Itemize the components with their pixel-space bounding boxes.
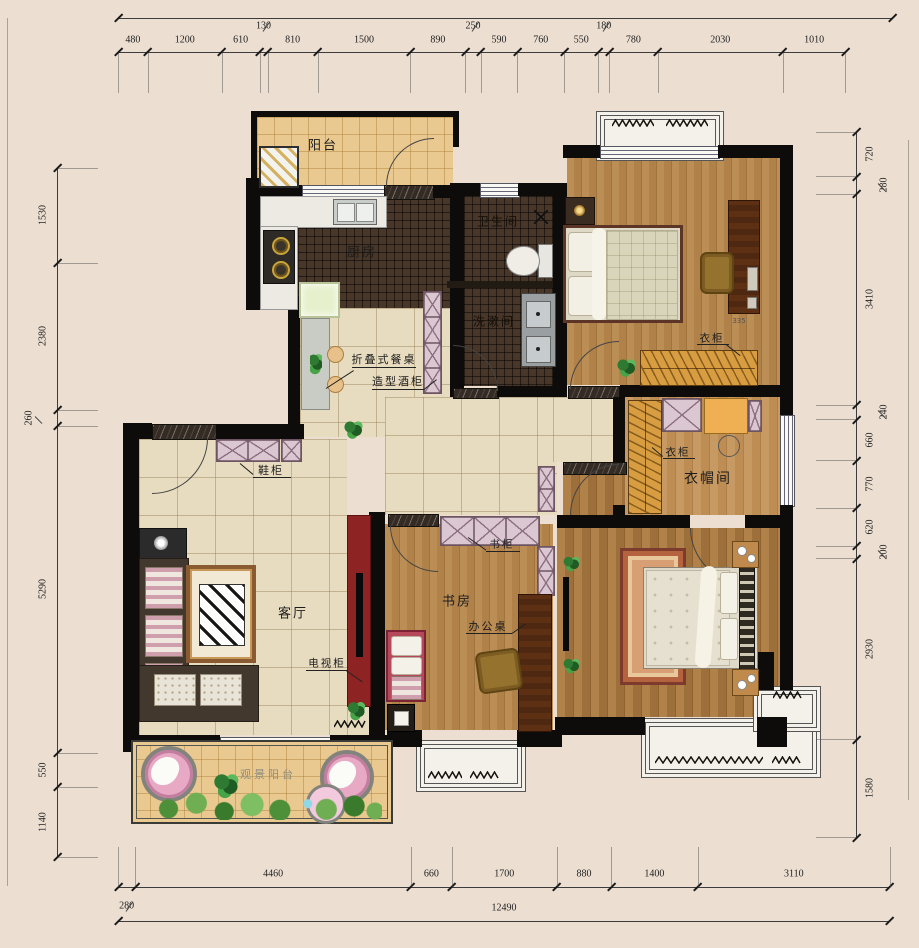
dim-tick (406, 48, 415, 57)
cabinet-x-panel (424, 317, 441, 342)
room-label-balcony-bottom: 观景阳台 (240, 766, 296, 782)
dim-tick (461, 48, 470, 57)
vanity-basin (526, 336, 551, 363)
label-shoe-cabinet: 鞋柜 (258, 462, 284, 478)
cabinet-x-panel (424, 343, 441, 368)
bay-window-master-bottom (645, 722, 817, 774)
dim-tick (594, 48, 603, 57)
dim-extension (816, 194, 856, 195)
dim-value: 610 (233, 35, 248, 46)
floor-plan-canvas: 阳台 厨房 卫生间 洗漱间 衣帽间 客厅 书房 观景阳台 折叠式餐桌 造型酒柜 … (0, 0, 919, 948)
shoe-cabinet (216, 439, 280, 462)
shower-mixer-icon (534, 210, 548, 224)
kitchen-sink (333, 199, 377, 225)
headboard (739, 566, 755, 672)
blanket (391, 676, 422, 700)
bedroom-bay-window-sill (600, 146, 720, 159)
wardrobe-cloakroom (628, 400, 662, 514)
radiator-icon (428, 771, 462, 779)
wall-bath-top-a (450, 183, 480, 196)
dim-tick (53, 405, 62, 414)
sofa-base (139, 665, 259, 722)
dim-value: 12490 (491, 903, 516, 914)
dim-value: 620 (865, 519, 876, 534)
floor-corridor (385, 397, 557, 515)
balcony-door-threshold (384, 185, 435, 200)
dim-tick (852, 503, 861, 512)
dim-tick (852, 735, 861, 744)
dim-value: 760 (533, 35, 548, 46)
dim-leader (35, 416, 43, 424)
dim-baseline (856, 132, 857, 837)
room-label-washroom: 洗漱间 (473, 313, 515, 330)
dim-extension (598, 53, 599, 93)
dim-value: 280 (879, 178, 890, 193)
dim-tick (313, 48, 322, 57)
dim-tick (114, 883, 123, 892)
wall-balcony-right (453, 111, 459, 147)
dim-tick (779, 48, 788, 57)
dim-extension (58, 753, 98, 754)
dim-extension (481, 53, 482, 93)
wall-hall-cloak-a (613, 397, 625, 462)
dim-value: 250 (466, 21, 481, 32)
pillow (720, 572, 738, 614)
cup (737, 680, 747, 690)
toilet-bowl (506, 246, 540, 276)
dim-extension (816, 546, 856, 547)
cloakroom-window (780, 415, 795, 507)
dim-value: 2030 (710, 35, 730, 46)
dim-tick (407, 883, 416, 892)
desk-chair (700, 252, 734, 294)
dim-value: 770 (865, 476, 876, 491)
dim-baseline (118, 921, 890, 922)
dim-tick (852, 554, 861, 563)
dim-extension (816, 419, 856, 420)
wall-bedroom-cloak-divider (620, 385, 793, 397)
sofa-cushion (154, 674, 196, 706)
plant (617, 358, 637, 378)
plant (563, 556, 581, 572)
dim-value: 660 (865, 432, 876, 447)
dim-tick (852, 128, 861, 137)
dim-tick (513, 48, 522, 57)
lamp (574, 205, 585, 216)
floor-hallway (553, 397, 613, 462)
cloakroom-cabinet-x (662, 398, 702, 432)
pillow (720, 618, 738, 660)
dim-leader (878, 410, 886, 418)
wall-balcony-left (251, 111, 257, 185)
dim-value: 260 (24, 410, 35, 425)
bed-top-bedroom (563, 225, 683, 323)
dim-value: 1140 (38, 812, 49, 832)
dim-value: 880 (576, 869, 591, 880)
room-label-bathroom: 卫生间 (477, 213, 519, 230)
wine-cabinet (423, 291, 442, 394)
dim-extension (411, 847, 412, 887)
wall-master-top-b (745, 515, 793, 528)
cabinet-x-panel (282, 440, 301, 461)
dim-tick (889, 14, 898, 23)
cabinet-x-panel (538, 571, 554, 595)
sofa-cushion (200, 674, 242, 706)
label-underline (486, 551, 520, 552)
label-tv-cabinet: 电视柜 (308, 656, 346, 671)
sofa-cushion (145, 567, 183, 609)
table-plant-decor (310, 351, 322, 377)
wall-living-left (123, 437, 139, 752)
dim-value: 1200 (175, 35, 195, 46)
room-label-cloakroom: 衣帽间 (684, 468, 732, 488)
dim-tick (217, 48, 226, 57)
radiator-icon (612, 119, 654, 127)
dim-extension (816, 739, 856, 740)
cabinet-x-panel (441, 517, 474, 545)
dim-extension (58, 410, 98, 411)
dim-value: 550 (38, 762, 49, 777)
cabinet-x-panel (217, 440, 248, 461)
dim-baseline (118, 18, 893, 19)
label-office-desk: 办公桌 (469, 618, 508, 634)
dim-leader (878, 183, 886, 191)
plant (344, 420, 364, 440)
dim-extension (816, 132, 856, 133)
dim-value: 1530 (38, 205, 49, 225)
plant (563, 658, 581, 674)
dim-value: 1700 (494, 869, 514, 880)
room-label-living: 客厅 (278, 603, 308, 622)
tv-master (563, 577, 569, 651)
dim-tick (852, 415, 861, 424)
cabinet-x-panel (424, 292, 441, 317)
wall-bath-divider (447, 281, 553, 288)
dim-extension (465, 53, 466, 93)
dim-leader (878, 550, 886, 558)
basin-drain (536, 312, 540, 316)
dim-tick (447, 883, 456, 892)
dim-tick (114, 48, 123, 57)
wall-right-mid (780, 505, 793, 690)
cabinet-x-panel (539, 467, 554, 489)
basin-drain (536, 347, 540, 351)
dim-extension (318, 53, 319, 93)
dim-tick (605, 48, 614, 57)
label-bookcase: 书柜 (490, 537, 515, 552)
dim-value: 720 (865, 147, 876, 162)
dim-extension (816, 558, 856, 559)
washing-machine (259, 146, 299, 188)
label-underline (466, 633, 512, 634)
plant (348, 700, 366, 722)
cabinet-x-panel (663, 399, 701, 431)
radiator-icon (773, 691, 803, 699)
wall-balcony-top (251, 111, 459, 117)
dim-tick (53, 782, 62, 791)
wall-right-upper (780, 145, 793, 415)
dim-tick (653, 48, 662, 57)
dim-tick (607, 883, 616, 892)
label-underline (372, 389, 424, 390)
refrigerator (299, 282, 340, 318)
bay-window-study (420, 744, 522, 788)
ottoman-circle (718, 435, 740, 457)
dim-extension (118, 847, 119, 887)
dim-extension (58, 426, 98, 427)
cloakroom-cabinet (704, 398, 748, 434)
dim-value: 180 (596, 21, 611, 32)
dim-tick (53, 748, 62, 757)
radiator-icon (666, 119, 708, 127)
radiator-icon (655, 756, 763, 764)
quilt (646, 570, 730, 666)
quilt (606, 230, 678, 320)
dim-extension (564, 53, 565, 93)
dim-value: 780 (626, 35, 641, 46)
plant (214, 772, 240, 800)
dim-tick (560, 48, 569, 57)
dim-tick (852, 456, 861, 465)
toilet-tank (538, 244, 553, 278)
master-nightstand (732, 669, 759, 696)
dim-value: 1580 (865, 778, 876, 798)
cloakroom-cabinet-x-small (748, 400, 762, 432)
dim-tick (143, 48, 152, 57)
dim-value: 810 (285, 35, 300, 46)
label-underline (663, 458, 695, 459)
vanity-basin (526, 301, 551, 328)
dim-tick (852, 833, 861, 842)
wall-study-left (369, 512, 385, 762)
cabinet-x-panel (538, 547, 554, 571)
dim-extension (816, 405, 856, 406)
dim-extension (260, 53, 261, 93)
dim-leader (125, 901, 133, 911)
wall-bay-column (757, 717, 787, 747)
radiator-icon (772, 756, 802, 764)
dim-value: 4460 (263, 869, 283, 880)
dim-value: 2930 (865, 639, 876, 659)
dim-tick (852, 542, 861, 551)
dim-extension (118, 53, 119, 93)
dim-baseline (118, 52, 845, 53)
room-label-study: 书房 (442, 591, 472, 610)
stove-burner (272, 237, 290, 255)
room-label-kitchen: 厨房 (347, 242, 377, 261)
tv-living (356, 573, 363, 657)
cabinet-x-panel (248, 440, 279, 461)
gas-stove (263, 230, 295, 284)
label-folding-table: 折叠式餐桌 (352, 351, 417, 367)
dim-extension (452, 847, 453, 887)
dim-extension (816, 837, 856, 838)
dim-value: 3410 (865, 289, 876, 309)
desk-item (747, 267, 758, 291)
office-desk (518, 594, 552, 732)
frame-line-right (908, 140, 909, 800)
dim-value: 480 (125, 35, 140, 46)
dim-extension (611, 847, 612, 887)
label-wine-cabinet: 造型酒柜 (372, 373, 424, 389)
wall-study-bottom-b (517, 730, 562, 747)
dim-value: 130 (256, 21, 271, 32)
cabinet-x-panel (424, 368, 441, 393)
dim-extension (148, 53, 149, 93)
dim-extension (845, 53, 846, 93)
quilt-fold (592, 228, 606, 320)
wall-master-stub (758, 652, 774, 690)
dim-tick (114, 917, 123, 926)
dim-extension (268, 53, 269, 93)
dim-extension (816, 460, 856, 461)
dim-value: 240 (879, 404, 890, 419)
dim-value: 5290 (38, 579, 49, 599)
label-underline (306, 670, 348, 671)
desk-item (747, 297, 757, 309)
pillow (391, 657, 422, 675)
dim-value: 660 (424, 869, 439, 880)
pillow (391, 636, 422, 656)
dim-tick (476, 48, 485, 57)
office-chair (474, 647, 523, 695)
dim-tick (885, 883, 894, 892)
dim-value: 590 (491, 35, 506, 46)
sink-basin (356, 203, 374, 222)
dim-tick (885, 917, 894, 926)
stove-burner (272, 261, 290, 279)
dim-extension (816, 508, 856, 509)
nightstand-tray (394, 711, 409, 726)
cup (747, 674, 756, 683)
dim-extension (222, 53, 223, 93)
corridor-cabinet (538, 466, 555, 512)
bookcase-column (537, 546, 555, 596)
dim-extension (816, 176, 856, 177)
dim-leader (262, 21, 270, 31)
dim-value: 1010 (804, 35, 824, 46)
dim-value: 280 (119, 901, 134, 912)
dim-value: 2380 (38, 326, 49, 346)
dim-extension (58, 263, 98, 264)
dim-value: 200 (879, 545, 890, 560)
radiator-icon (470, 771, 500, 779)
wall-master-top-a (557, 515, 690, 528)
study-nightstand (387, 704, 415, 732)
dim-tick (131, 883, 140, 892)
dim-baseline (118, 887, 890, 888)
label-underline (697, 344, 729, 345)
dim-tick (263, 48, 272, 57)
dim-value: 1400 (644, 869, 664, 880)
washroom-vanity (521, 293, 556, 367)
dim-tick (841, 48, 850, 57)
wall-bedroom-top-a (563, 145, 600, 158)
dim-tick (552, 883, 561, 892)
dim-extension (557, 847, 558, 887)
frame-line-left (7, 18, 8, 886)
master-bed (643, 567, 758, 669)
lamp (154, 536, 168, 550)
bathroom-window (480, 183, 520, 198)
master-nightstand (732, 541, 759, 568)
cup (747, 554, 756, 563)
dim-tick (255, 48, 264, 57)
dim-extension (135, 847, 136, 887)
dim-extension (58, 857, 98, 858)
sink-basin (337, 203, 355, 222)
dim-baseline (57, 168, 58, 857)
dim-tick (114, 14, 123, 23)
side-table (139, 528, 187, 560)
room-label-balcony-top: 阳台 (308, 135, 338, 154)
dim-tick (852, 190, 861, 199)
radiator-icon (334, 720, 366, 728)
balcony-greenery (150, 792, 382, 820)
dim-extension (890, 847, 891, 887)
dim-extension (410, 53, 411, 93)
cup (737, 546, 747, 556)
dim-tick (852, 172, 861, 181)
label-underline (352, 367, 416, 368)
dim-extension (698, 847, 699, 887)
dim-tick (53, 853, 62, 862)
dim-extension (658, 53, 659, 93)
dim-tick (53, 421, 62, 430)
dim-value: 3110 (784, 869, 804, 880)
dim-value: 1500 (354, 35, 374, 46)
dim-value: 550 (574, 35, 589, 46)
label-wardrobe-dim: 335 (732, 317, 745, 325)
wall-master-bottom (555, 717, 645, 735)
dim-extension (58, 168, 98, 169)
dim-leader (472, 21, 480, 31)
label-underline (253, 477, 291, 478)
cabinet-x-panel (539, 489, 554, 511)
dim-tick (53, 258, 62, 267)
dim-tick (852, 400, 861, 409)
wall-living-top (216, 424, 304, 439)
dim-extension (517, 53, 518, 93)
sofa-cushion (145, 615, 183, 657)
dim-tick (53, 164, 62, 173)
folding-dining-table (301, 318, 330, 410)
dining-stool (327, 346, 344, 363)
daybed-study (386, 630, 426, 702)
cabinet-x-panel (749, 401, 761, 431)
dim-value: 890 (430, 35, 445, 46)
nightstand (565, 197, 595, 225)
dim-leader (602, 21, 610, 31)
coffee-table (199, 584, 245, 646)
dim-extension (58, 787, 98, 788)
dim-extension (783, 53, 784, 93)
dim-tick (693, 883, 702, 892)
shoe-cabinet-end (281, 439, 302, 462)
dim-extension (609, 53, 610, 93)
